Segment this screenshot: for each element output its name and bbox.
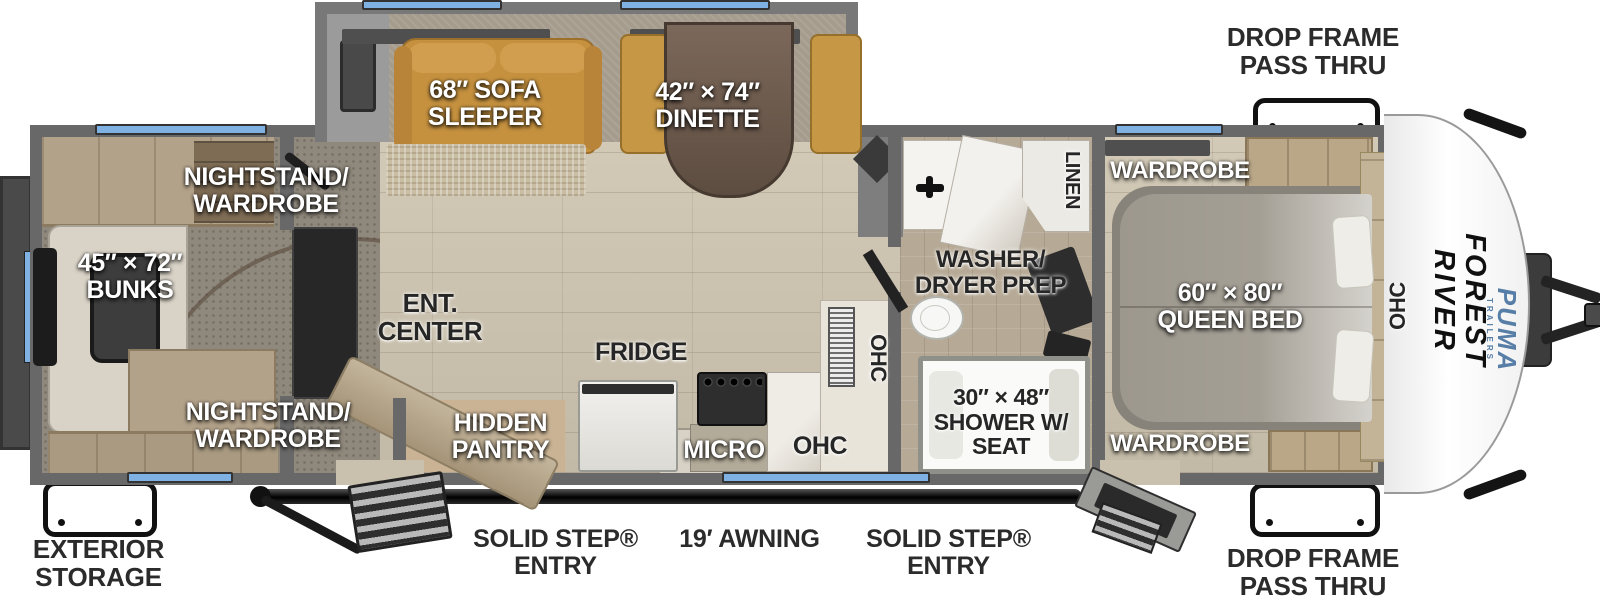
window [1115,124,1223,135]
nightstand-wardrobe-bottom-label: NIGHTSTAND/ WARDROBE [168,394,368,458]
hitch-coupler [1584,303,1600,327]
slideout-window [340,40,376,112]
sofa-rug [386,144,586,196]
puma-logo-subtext: TRAILERS [1484,298,1493,362]
sofa-sleeper-label: 68″ SOFA SLEEPER [400,70,570,138]
rear-bunk-slide-exterior [0,176,32,450]
awning-label: 19′ AWNING [652,524,847,554]
sofa-armrest [584,46,602,150]
bedroom-wardrobe-bottom [1268,430,1373,472]
washer-dryer-prep-label: WASHER/ DRYER PREP [903,242,1078,304]
entry-steps-left [347,471,452,553]
sofa-back-cushion [500,43,588,73]
front-cap-trim [1462,468,1528,501]
ohc-counter-label: OHC [782,432,858,460]
ohc-bedroom-label: OHC [1383,278,1413,334]
pass-thru-bracket-bottom [1250,483,1380,537]
ent-center-label: ENT. CENTER [350,284,510,352]
pillow [1332,329,1375,403]
puma-logo-text: PUMA [1494,288,1520,373]
bedroom-overhead-shelf [1105,140,1210,156]
shower-label: 30″ × 48″ SHOWER W/ SEAT [922,380,1080,464]
solid-step-entry-left-label: SOLID STEP® ENTRY [468,521,643,585]
front-cap-trim [1462,107,1528,140]
window [127,472,233,483]
pillow [1332,215,1375,289]
window [620,0,770,10]
queen-bed-label: 60″ × 80″ QUEEN BED [1135,275,1325,339]
micro-label: MICRO [679,436,769,464]
hidden-pantry-label: HIDDEN PANTRY [428,406,573,468]
stove-burners [702,376,762,389]
nightstand-wardrobe-top-label: NIGHTSTAND/ WARDROBE [166,159,366,223]
faucet-icon [926,176,933,198]
bathroom-wall-right [1092,137,1105,473]
bunks-label: 45″ × 72″ BUNKS [60,245,200,309]
counter-vent [828,307,855,387]
bunkroom-tv [33,248,57,366]
window [95,124,267,135]
sofa-back-cushion [408,43,496,73]
drop-frame-top-label: DROP FRAME PASS THRU [1213,20,1413,84]
wardrobe-top-label: WARDROBE [1105,156,1255,186]
linen-label: LINEN [1056,150,1086,210]
ohc-kitchen-label: OHC [863,330,893,386]
forest-river-logo: FOREST RIVER [1444,176,1474,426]
fridge-label: FRIDGE [586,338,696,366]
wardrobe-bottom-label: WARDROBE [1105,429,1255,459]
floorplan-canvas: 68″ SOFA SLEEPER 42″ × 74″ DINETTE NIGHT… [0,0,1600,610]
exterior-storage-label: EXTERIOR STORAGE [16,532,181,596]
toilet-seat [920,305,950,331]
exterior-storage-bracket [43,481,157,537]
bracket-screw [1266,519,1273,526]
drop-frame-bottom-label: DROP FRAME PASS THRU [1213,541,1413,605]
window [362,0,502,10]
bracket-screw [135,519,142,526]
window [722,472,930,483]
bracket-screw [1357,519,1364,526]
puma-logo: PUMA TRAILERS [1474,262,1530,398]
solid-step-entry-right-label: SOLID STEP® ENTRY [861,521,1036,585]
bracket-screw [58,519,65,526]
fridge [578,380,678,472]
dinette-label: 42″ × 74″ DINETTE [625,72,790,140]
stove-cooktop [697,372,767,426]
bathroom-wall-left-upper [888,137,901,247]
fridge-lid [582,384,674,394]
dinette-bench [810,34,862,154]
